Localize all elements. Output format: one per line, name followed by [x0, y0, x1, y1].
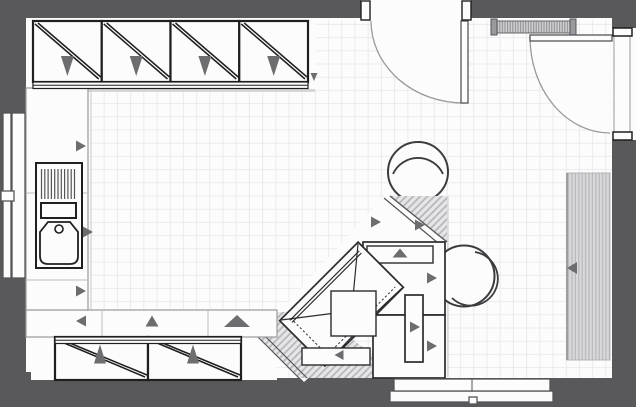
- window-bottom[interactable]: [390, 379, 553, 404]
- wall-nub: [24, 372, 31, 380]
- round-chair-top[interactable]: [388, 142, 448, 202]
- armchair-seat: [331, 291, 376, 336]
- window-latch: [1, 191, 14, 201]
- sink-unit[interactable]: [36, 163, 82, 268]
- wall-cabinet-row-top[interactable]: [33, 21, 308, 82]
- window-left[interactable]: [1, 113, 25, 278]
- floor-plan-drawing: [0, 0, 636, 407]
- rail-end-cap: [570, 19, 576, 35]
- door-leaf: [461, 21, 468, 103]
- rail-end-cap: [491, 19, 497, 35]
- floor-plan-canvas: [0, 0, 636, 407]
- door-jamb: [613, 28, 632, 36]
- door-opening: [612, 28, 636, 140]
- sink-faucet: [55, 225, 63, 233]
- wall-rail-top[interactable]: [491, 19, 576, 35]
- door-jamb: [462, 1, 471, 20]
- window-foot: [469, 397, 477, 404]
- sink-drainboard: [41, 203, 76, 218]
- door-jamb: [613, 132, 632, 140]
- rail-body: [494, 21, 573, 33]
- island-drawer-lower[interactable]: [302, 348, 370, 365]
- door-opening: [361, 0, 471, 20]
- door-jamb: [361, 1, 370, 20]
- bottom-cabinet-rail: [55, 337, 241, 344]
- door-leaf: [530, 35, 612, 41]
- top-cabinet-rail: [33, 82, 308, 89]
